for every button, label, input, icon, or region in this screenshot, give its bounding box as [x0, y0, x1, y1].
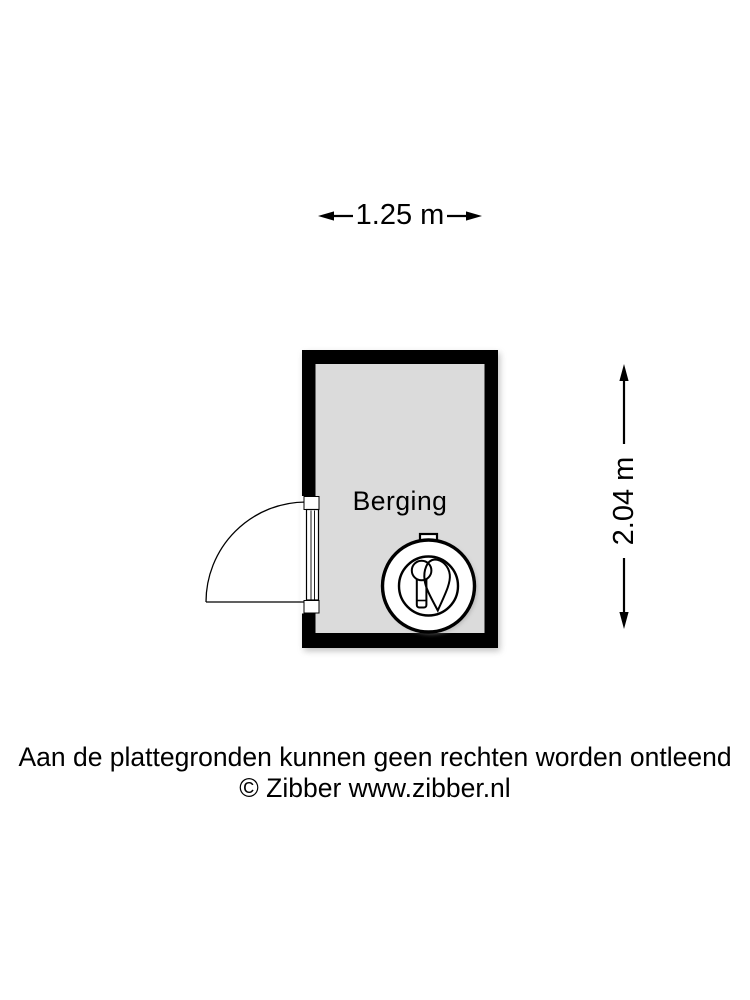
door [206, 496, 319, 614]
footer: Aan de plattegronden kunnen geen rechten… [0, 742, 750, 804]
dimension-height-label: 2.04 m [607, 421, 641, 581]
door-jamb-bottom [304, 601, 319, 614]
dimension-width-label: 1.25 m [310, 198, 490, 232]
boiler-outer-circle [383, 540, 475, 632]
footer-copyright: © Zibber www.zibber.nl [0, 773, 750, 804]
floorplan-page: 1.25 m 2.04 m Berging Aan de plattegrond… [0, 0, 750, 1000]
room-label: Berging [315, 487, 485, 515]
door-swing-arc [206, 502, 306, 602]
door-leaf [307, 510, 319, 601]
footer-disclaimer: Aan de plattegronden kunnen geen rechten… [0, 742, 750, 773]
